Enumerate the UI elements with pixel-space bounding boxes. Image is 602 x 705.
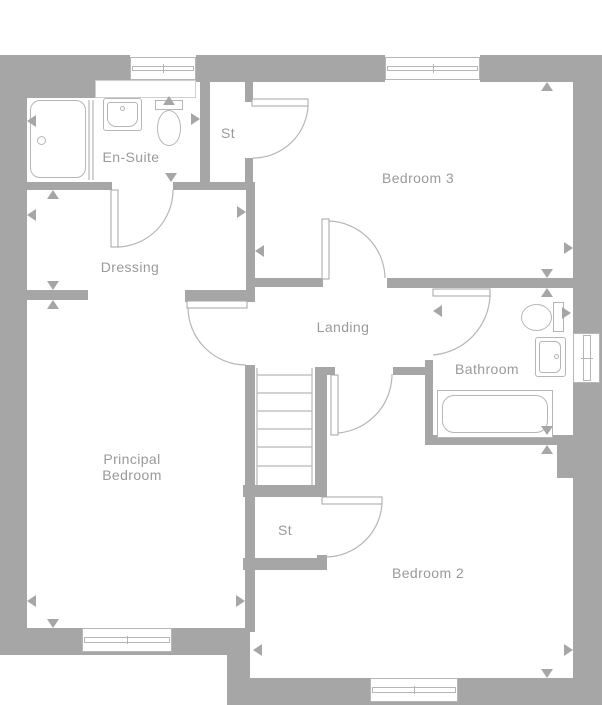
- room-label-storage-top: St: [221, 125, 235, 141]
- window-ensuite: [130, 57, 196, 80]
- wall-corner-block: [557, 435, 602, 478]
- wall-ensuite-north: [0, 82, 97, 98]
- floor-plan: En-Suite St Bedroom 3 Dressing Landing B…: [0, 0, 602, 705]
- wall-stairs-east: [315, 367, 327, 497]
- dimension-marker-ensuite-east: [191, 113, 200, 125]
- wall-landing-bedroom2-stub: [327, 367, 335, 375]
- wall-bedroom3-south-west: [253, 278, 323, 287]
- dimension-marker-principal-west: [27, 595, 36, 607]
- wall-storage-bottom-south: [243, 558, 327, 570]
- dimension-marker-bedroom2-north: [541, 445, 553, 454]
- dimension-marker-principal-north: [47, 300, 59, 309]
- door-arc-storage-top: [253, 106, 308, 158]
- room-label-ensuite: En-Suite: [103, 149, 160, 165]
- bathroom-toilet-bowl: [521, 304, 552, 331]
- window-bedroom3: [385, 57, 480, 80]
- window-mullion: [433, 64, 434, 72]
- wall-ensuite-south-west: [27, 182, 112, 190]
- shower-tray: [30, 100, 86, 178]
- wall-bathroom-west: [425, 360, 433, 445]
- wall-storage-top-east-upper: [245, 80, 253, 102]
- shower-drain: [37, 136, 46, 145]
- bathroom-basin-tap: [554, 354, 559, 359]
- window-reveal-ensuite: [95, 80, 196, 98]
- ensuite-toilet-bowl: [157, 110, 181, 146]
- room-label-storage-bottom: St: [278, 522, 292, 538]
- room-label-landing: Landing: [317, 319, 370, 335]
- dimension-marker-dressing-west: [27, 209, 36, 221]
- window-bathroom: [573, 333, 600, 383]
- dimension-marker-bathroom-north: [541, 288, 553, 297]
- dimension-marker-ensuite-north: [163, 96, 175, 105]
- wall-principal-east: [245, 365, 255, 632]
- dimension-marker-bathroom-west: [433, 305, 442, 317]
- wall-stairs-bottom: [243, 485, 327, 497]
- dimension-marker-bedroom3-north: [541, 82, 553, 91]
- door-leaf-bathroom: [433, 289, 490, 296]
- door-arc-principal-bedroom: [188, 307, 246, 365]
- bath: [437, 390, 553, 438]
- room-label-bedroom2: Bedroom 2: [392, 565, 464, 581]
- bathroom-basin: [535, 337, 566, 377]
- wall-exterior-top-mid: [196, 55, 385, 82]
- dimension-marker-bathroom-east: [562, 307, 571, 319]
- wall-bedroom3-south-east: [387, 278, 573, 288]
- ensuite-basin: [103, 98, 142, 131]
- window-mullion: [163, 64, 164, 72]
- dimension-marker-dressing-south: [47, 281, 59, 290]
- dimension-marker-landing-west: [255, 245, 264, 257]
- dimension-marker-dressing-north: [47, 190, 59, 199]
- door-arc-bedroom2: [338, 374, 392, 433]
- window-principal-bedroom: [82, 628, 172, 652]
- window-mullion: [414, 686, 415, 695]
- dimension-marker-dressing-east: [237, 206, 246, 218]
- door-leaf-storage-top: [252, 99, 308, 106]
- window-bedroom2: [370, 678, 458, 702]
- door-arc-bedroom3: [329, 221, 385, 278]
- doors-and-stairs-layer: [0, 0, 602, 705]
- dimension-marker-bathroom-south: [541, 426, 553, 435]
- door-leaf-bedroom2: [331, 375, 338, 435]
- room-label-bathroom: Bathroom: [455, 361, 519, 377]
- dimension-marker-bedroom2-south: [541, 669, 553, 678]
- staircase: [257, 368, 312, 485]
- room-label-dressing: Dressing: [101, 259, 159, 275]
- dimension-marker-bedroom2-east: [564, 644, 573, 656]
- dimension-marker-bedroom3-south: [541, 269, 553, 278]
- dimension-marker-principal-east: [236, 595, 245, 607]
- wall-ensuite-storage-divider: [200, 80, 210, 190]
- wall-exterior-left: [0, 55, 27, 655]
- dimension-marker-bedroom2-west: [253, 644, 262, 656]
- door-leaf-ensuite: [111, 190, 118, 247]
- dimension-marker-ensuite-west: [27, 115, 36, 127]
- window-mullion: [127, 636, 128, 645]
- wall-ensuite-south-east: [173, 182, 253, 190]
- door-leaf-principal-bedroom: [187, 301, 247, 308]
- dimension-marker-ensuite-south: [165, 173, 177, 182]
- dimension-marker-principal-south: [47, 619, 59, 628]
- shower-screen: [89, 100, 93, 180]
- dimension-marker-bedroom3-east: [564, 242, 573, 254]
- door-leaf-bedroom3: [322, 219, 329, 279]
- window-mullion: [581, 358, 593, 359]
- room-label-bedroom3: Bedroom 3: [382, 170, 454, 186]
- room-label-principal-bedroom: Principal Bedroom: [90, 451, 174, 483]
- bath-inner: [442, 395, 548, 433]
- wall-dressing-principal-west: [27, 290, 88, 300]
- door-arc-ensuite: [118, 190, 173, 247]
- wall-dressing-principal-east: [185, 290, 247, 302]
- door-leaf-storage-bottom: [322, 497, 382, 504]
- ensuite-basin-tap: [120, 106, 125, 111]
- door-arc-storage-bottom: [327, 504, 382, 557]
